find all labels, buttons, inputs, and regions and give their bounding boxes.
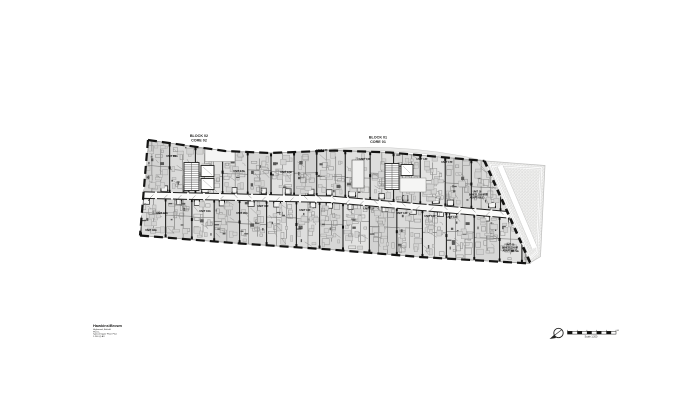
- svg-text:BLOCK 01: BLOCK 01: [369, 136, 387, 140]
- svg-text:UNIT 01A: UNIT 01A: [166, 154, 178, 158]
- svg-text:UNIT 19: UNIT 19: [473, 192, 482, 194]
- svg-text:ADAPTABLE): ADAPTABLE): [470, 197, 485, 200]
- svg-text:UNIT 10F: UNIT 10F: [299, 208, 311, 212]
- svg-text:(WHEELCHAIR: (WHEELCHAIR: [469, 194, 486, 197]
- svg-text:UNIT 11F: UNIT 11F: [363, 207, 375, 211]
- svg-text:UNIT 04A: UNIT 04A: [199, 209, 211, 213]
- svg-text:BLOCK 02: BLOCK 02: [190, 134, 208, 138]
- svg-text:UNIT 15F: UNIT 15F: [359, 157, 371, 161]
- svg-text:CORE 02: CORE 02: [191, 139, 207, 143]
- svg-text:CORE 01: CORE 01: [370, 140, 386, 144]
- svg-text:UNIT 17F: UNIT 17F: [441, 160, 453, 164]
- svg-text:UNIT 17A: UNIT 17A: [233, 169, 245, 173]
- svg-text:UNIT 14F: UNIT 14F: [446, 215, 458, 219]
- svg-text:UNIT 16B: UNIT 16B: [280, 170, 292, 174]
- svg-text:ADAPTABLE): ADAPTABLE): [503, 250, 518, 253]
- svg-text:Hawkins\Brown: Hawkins\Brown: [93, 323, 123, 328]
- svg-text:UNIT 03A: UNIT 03A: [156, 211, 168, 215]
- svg-text:UNIT 09: UNIT 09: [506, 245, 515, 247]
- svg-text:UNIT 18F: UNIT 18F: [416, 157, 428, 161]
- svg-text:10: 10: [617, 330, 620, 332]
- svg-text:UNIT 02A: UNIT 02A: [145, 228, 157, 232]
- svg-text:UNIT 09F: UNIT 09F: [257, 204, 269, 208]
- svg-text:UNIT 16F: UNIT 16F: [316, 148, 328, 152]
- svg-text:UNIT 12F: UNIT 12F: [396, 211, 408, 215]
- svg-text:1:200 @ A3: 1:200 @ A3: [93, 335, 105, 338]
- svg-text:Scale 1:200: Scale 1:200: [585, 336, 598, 339]
- svg-text:(WHEELCHAIR: (WHEELCHAIR: [502, 247, 519, 250]
- svg-text:UNIT 13F: UNIT 13F: [424, 214, 436, 218]
- svg-text:UNIT 05A: UNIT 05A: [236, 211, 248, 215]
